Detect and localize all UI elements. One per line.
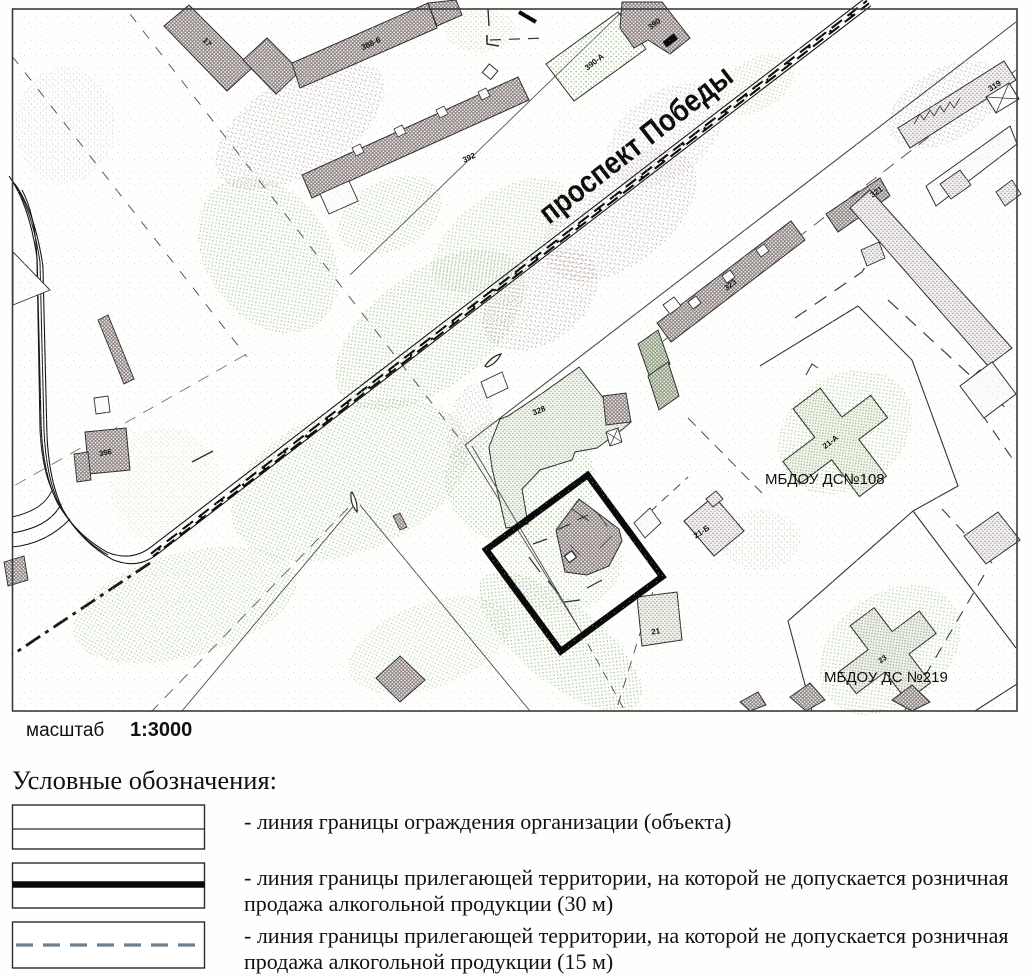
svg-text:продажа алкогольной продукции: продажа алкогольной продукции (15 м)	[244, 949, 613, 974]
svg-text:продажа алкогольной продукции: продажа алкогольной продукции (30 м)	[244, 891, 613, 916]
svg-text:- линия границы ограждения орг: - линия границы ограждения организации (…	[244, 809, 731, 834]
svg-text:1:3000: 1:3000	[130, 719, 192, 741]
svg-text:- линия границы прилегающей те: - линия границы прилегающей территории, …	[244, 923, 1008, 948]
svg-text:масштаб: масштаб	[26, 720, 104, 741]
svg-text:Условные обозначения:: Условные обозначения:	[12, 765, 277, 795]
svg-text:- линия границы прилегающей те: - линия границы прилегающей территории, …	[244, 865, 1008, 890]
